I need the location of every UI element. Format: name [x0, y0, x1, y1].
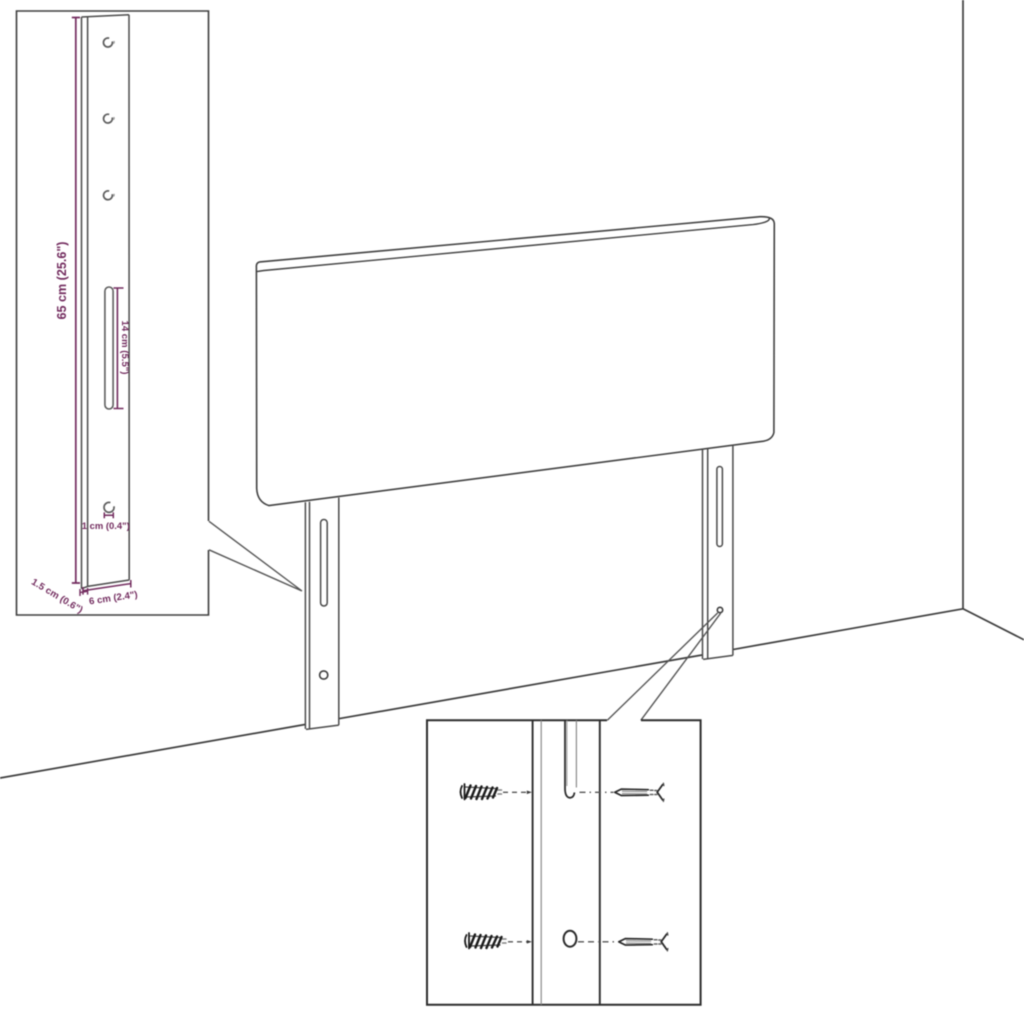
svg-text:6 cm (2.4"): 6 cm (2.4"): [88, 589, 138, 607]
svg-text:65 cm (25.6"): 65 cm (25.6"): [54, 242, 69, 320]
svg-text:1 cm (0.4"): 1 cm (0.4"): [82, 521, 130, 532]
svg-text:14 cm (5.5"): 14 cm (5.5"): [119, 321, 130, 375]
